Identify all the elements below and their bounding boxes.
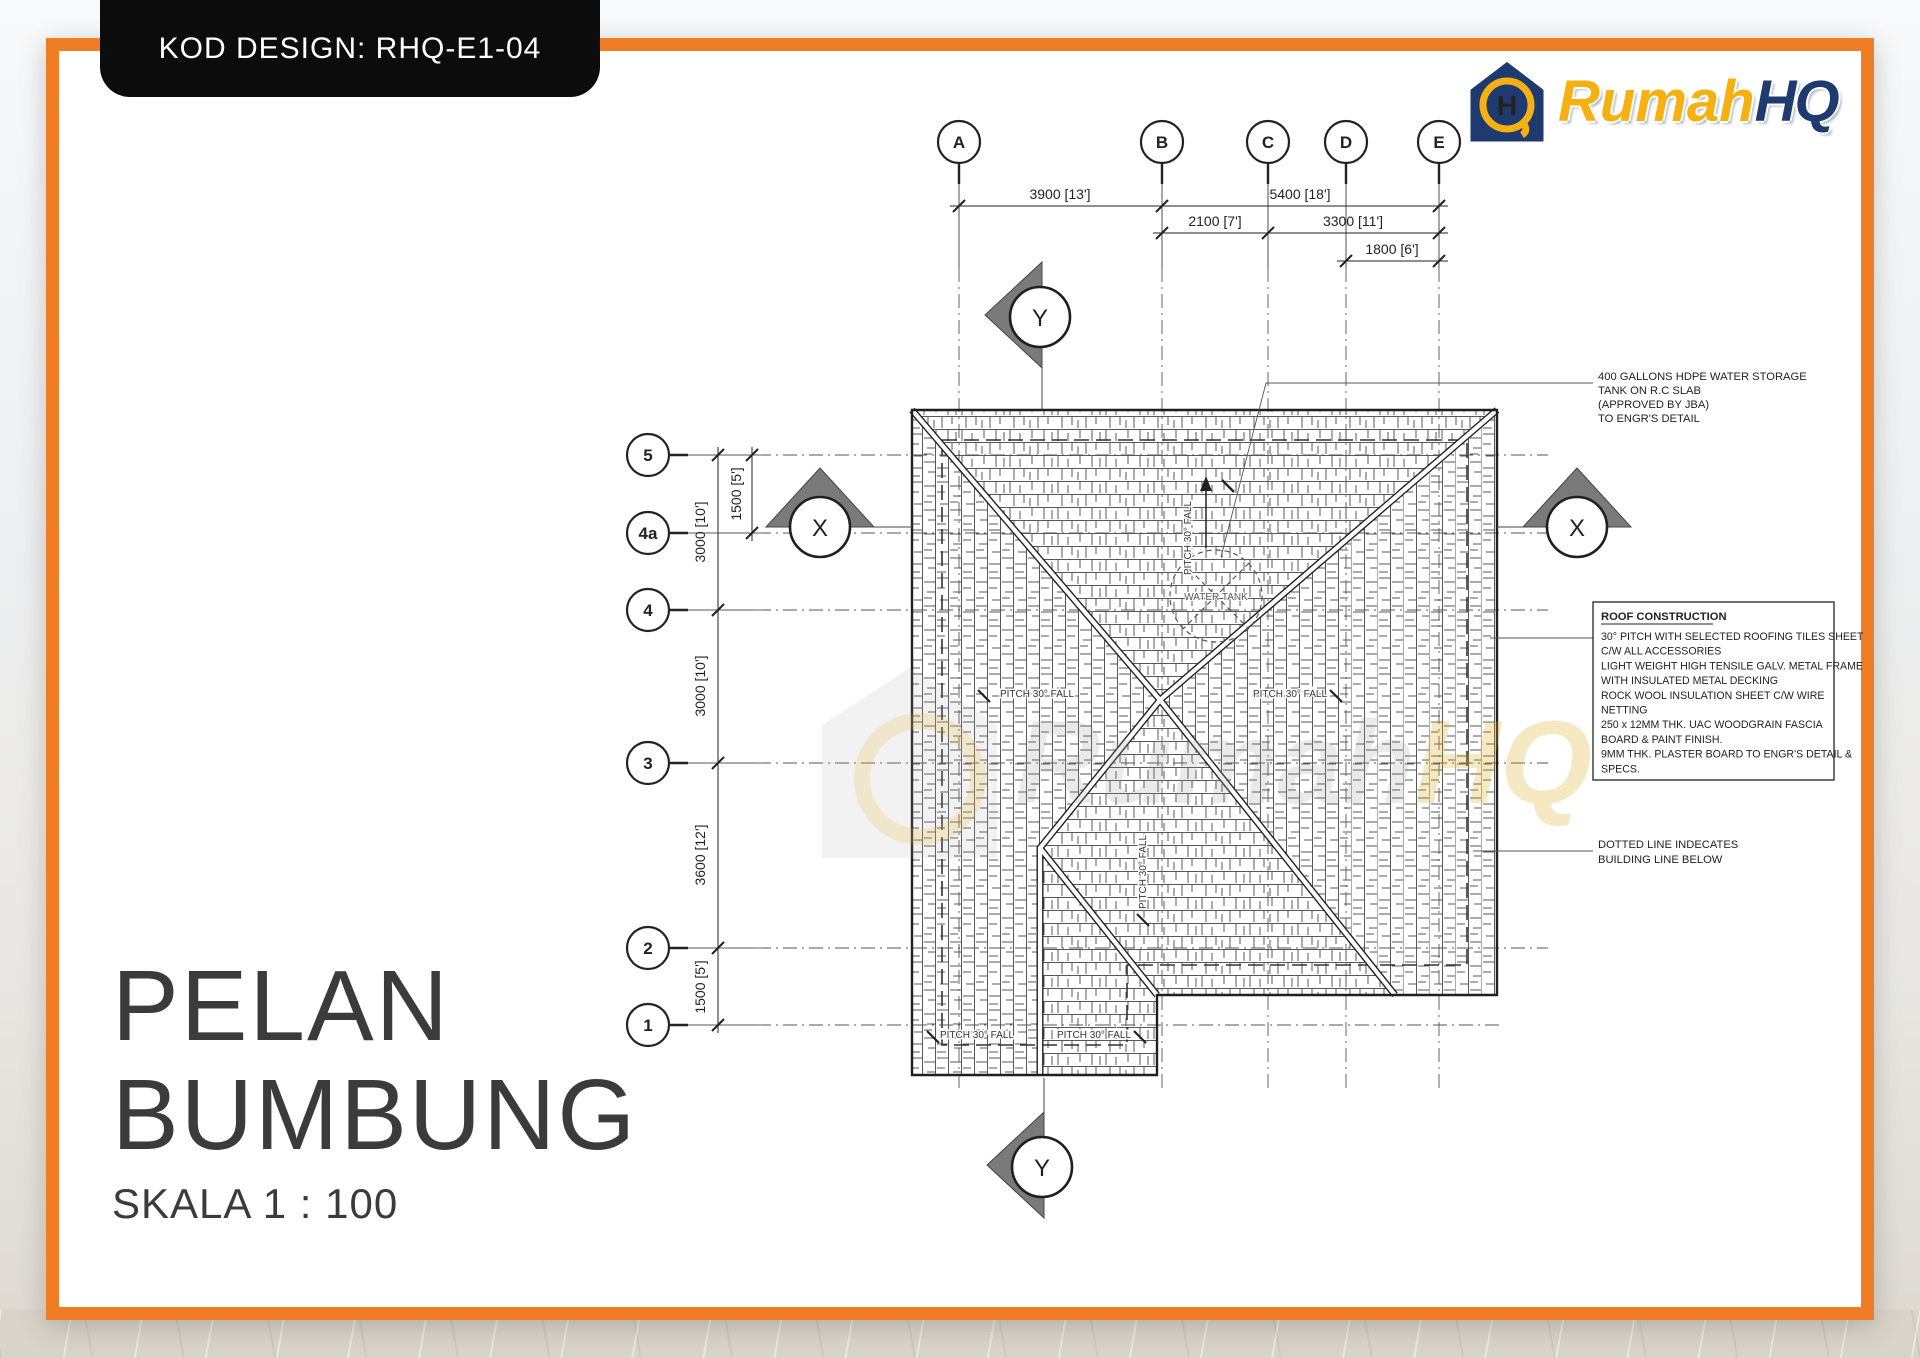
- note-water-tank-line1: 400 GALLONS HDPE WATER STORAGE: [1598, 371, 1807, 383]
- roof-construction-title: ROOF CONSTRUCTION: [1601, 611, 1727, 623]
- rumahhq-logo: H Rumah HQ: [1466, 56, 1838, 148]
- roof-construction-line1: 30° PITCH WITH SELECTED ROOFING TILES SH…: [1601, 631, 1864, 643]
- grid-row-4a: 4a: [627, 512, 669, 554]
- note-water-tank-line3: (APPROVED BY JBA): [1598, 399, 1709, 411]
- grid-column-A-label: A: [953, 133, 965, 152]
- note-dotted-line1: DOTTED LINE INDECATES: [1598, 839, 1738, 851]
- note-roof-construction: ROOF CONSTRUCTION 30° PITCH WITH SELECTE…: [1593, 602, 1864, 780]
- grid-row-3: 3: [627, 742, 669, 784]
- grid-column-B: B: [1141, 121, 1183, 163]
- grid-column-E-label: E: [1433, 133, 1444, 152]
- logo-word-rumah: Rumah: [1558, 73, 1755, 131]
- roof-construction-line8: BOARD & PAINT FINISH.: [1601, 734, 1722, 746]
- section-y-bottom-label: Y: [1034, 1155, 1050, 1182]
- grid-row-4a-label: 4a: [639, 524, 658, 543]
- grid-column-E: E: [1418, 121, 1460, 163]
- note-dotted-line2: BUILDING LINE BELOW: [1598, 854, 1723, 866]
- roof-construction-line4: WITH INSULATED METAL DECKING: [1601, 675, 1778, 687]
- title-block: PELAN BUMBUNG SKALA 1 : 100: [112, 952, 637, 1228]
- drawing-scale: SKALA 1 : 100: [112, 1180, 637, 1228]
- roof-construction-line3: LIGHT WEIGHT HIGH TENSILE GALV. METAL FR…: [1601, 660, 1863, 672]
- left-dimension-lines: [669, 447, 758, 1033]
- dim-left-3000-b: 3000 [10']: [692, 655, 708, 716]
- roof-construction-line10: SPECS.: [1601, 763, 1640, 775]
- dim-top-5400: 5400 [18']: [1269, 186, 1330, 202]
- pitch-label-bottom-mid: PITCH 30° FALL: [1057, 1030, 1131, 1041]
- section-marker-x-right: X: [1497, 468, 1631, 557]
- page-title-line2: BUMBUNG: [112, 1061, 637, 1170]
- grid-column-A: A: [938, 121, 980, 163]
- roof-construction-line5: ROCK WOOL INSULATION SHEET C/W WIRE: [1601, 690, 1824, 702]
- section-marker-y-top: Y: [985, 262, 1070, 410]
- section-marker-x-left: X: [766, 468, 912, 557]
- pitch-label-bottom-left: PITCH 30° FALL: [940, 1030, 1014, 1041]
- grid-column-C-label: C: [1262, 133, 1274, 152]
- pitch-label-right: PITCH 30° FALL: [1253, 689, 1327, 700]
- grid-column-D: D: [1325, 121, 1367, 163]
- rumahhq-logo-icon: H: [1466, 58, 1548, 146]
- note-water-tank: 400 GALLONS HDPE WATER STORAGE TANK ON R…: [1598, 371, 1807, 425]
- dim-left-3000-a: 3000 [10']: [692, 501, 708, 562]
- note-dotted-line: DOTTED LINE INDECATES BUILDING LINE BELO…: [1598, 839, 1738, 866]
- roof-construction-line9: 9MM THK. PLASTER BOARD TO ENGR'S DETAIL …: [1601, 749, 1852, 761]
- section-x-right-label: X: [1569, 515, 1585, 542]
- note-water-tank-line4: TO ENGR'S DETAIL: [1598, 413, 1700, 425]
- pitch-label-left: PITCH 30° FALL: [1000, 689, 1074, 700]
- pitch-label-ext-vertical: PITCH 30° FALL: [1138, 835, 1149, 909]
- section-x-left-label: X: [812, 515, 828, 542]
- grid-row-4: 4: [627, 589, 669, 631]
- dim-left-1500: 1500 [5']: [692, 960, 708, 1013]
- dim-top-3900: 3900 [13']: [1029, 186, 1090, 202]
- grid-row-4-label: 4: [643, 601, 653, 620]
- grid-column-bubbles: A B C D E: [938, 121, 1460, 163]
- dim-top-1800: 1800 [6']: [1365, 241, 1418, 257]
- logo-h-monogram: H: [1497, 90, 1517, 121]
- design-code-badge: KOD DESIGN: RHQ-E1-04: [100, 0, 600, 97]
- roof-construction-line2: C/W ALL ACCESSORIES: [1601, 646, 1721, 658]
- grid-row-3-label: 3: [643, 754, 652, 773]
- dim-left-1500-inner: 1500 [5']: [728, 467, 744, 520]
- dim-left-3600: 3600 [12']: [692, 824, 708, 885]
- pitch-label-top: PITCH 30° FALL: [1183, 501, 1194, 575]
- note-water-tank-line2: TANK ON R.C SLAB: [1598, 385, 1701, 397]
- section-marker-y-bottom: Y: [987, 1078, 1072, 1218]
- page-title-line1: PELAN: [112, 952, 637, 1061]
- top-dimension-labels: 3900 [13'] 5400 [18'] 2100 [7'] 3300 [11…: [1029, 186, 1418, 257]
- dim-top-3300: 3300 [11']: [1323, 213, 1383, 229]
- section-y-top-label: Y: [1032, 305, 1048, 332]
- water-tank-label: WATER TANK: [1184, 592, 1248, 603]
- roof-construction-line6: NETTING: [1601, 705, 1648, 717]
- grid-column-B-label: B: [1156, 133, 1168, 152]
- grid-row-5: 5: [627, 434, 669, 476]
- grid-row-5-label: 5: [643, 446, 652, 465]
- dim-top-2100: 2100 [7']: [1188, 213, 1241, 229]
- grid-row-1-label: 1: [643, 1016, 652, 1035]
- roof-construction-line7: 250 x 12MM THK. UAC WOODGRAIN FASCIA: [1601, 719, 1824, 731]
- grid-column-D-label: D: [1340, 133, 1352, 152]
- logo-word-hq: HQ: [1755, 73, 1838, 131]
- grid-column-C: C: [1247, 121, 1289, 163]
- grid-row-2-label: 2: [643, 939, 652, 958]
- design-code-label: KOD DESIGN: RHQ-E1-04: [159, 32, 542, 66]
